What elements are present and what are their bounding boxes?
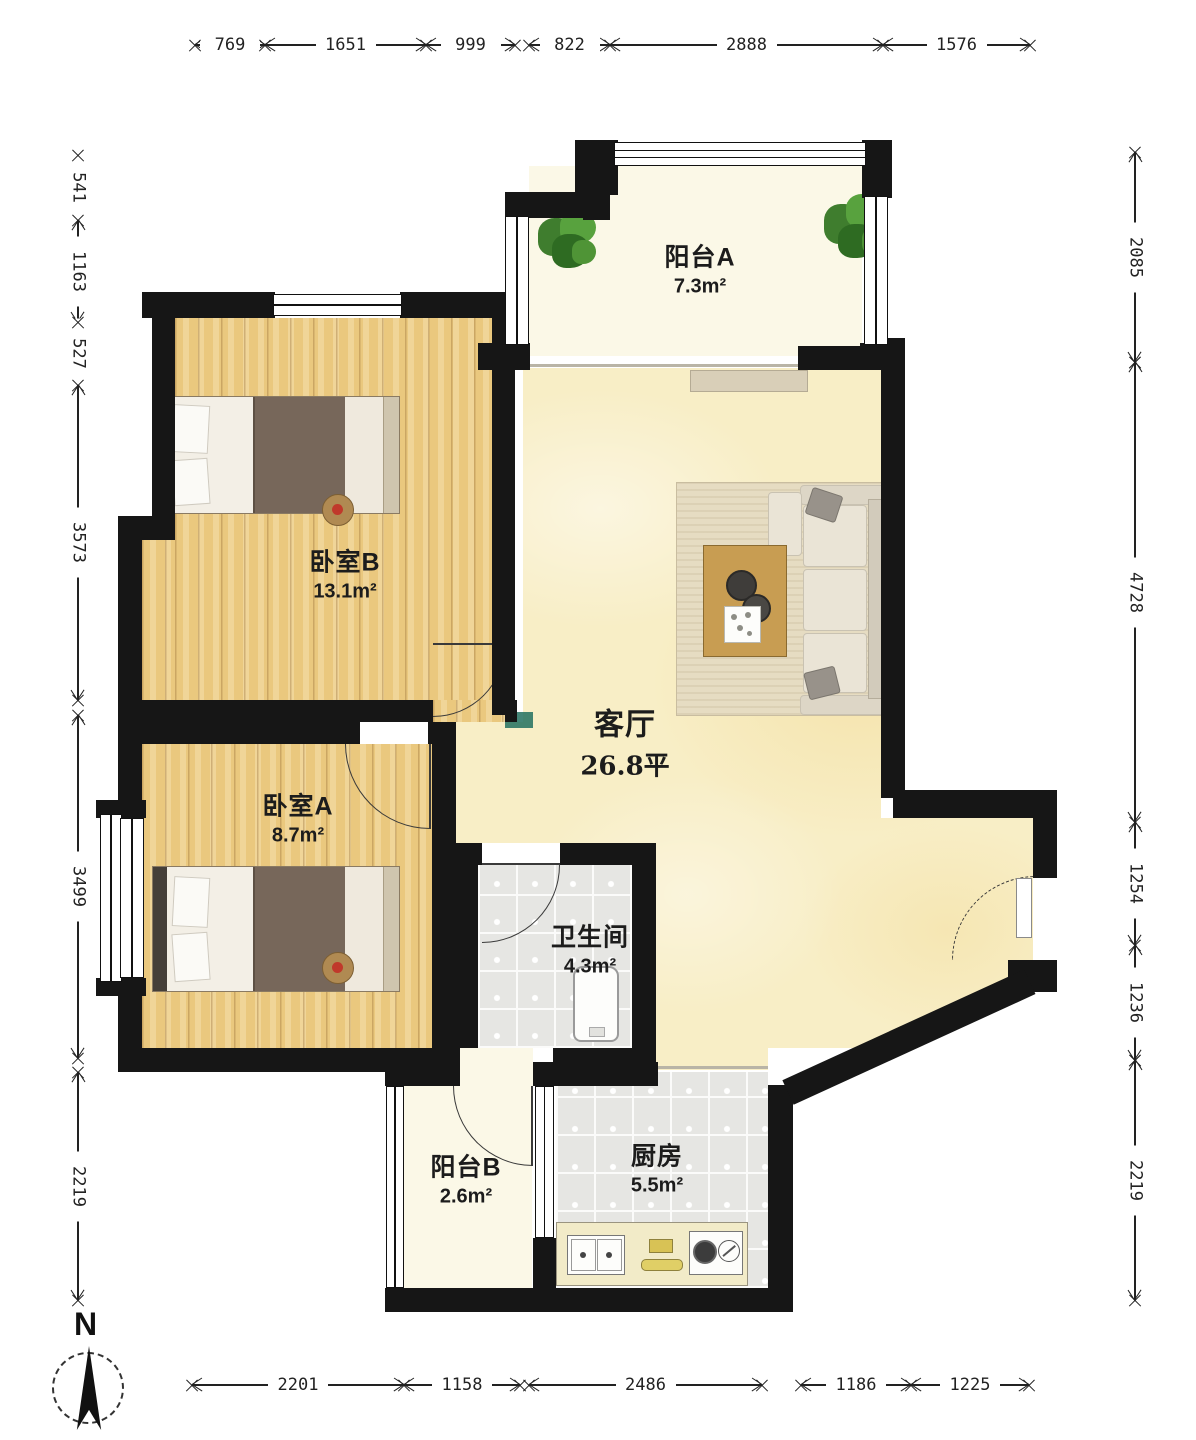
dimension-tick-icon [72, 1052, 85, 1065]
dimension-tick-icon [509, 39, 522, 52]
kitchen-counter [556, 1222, 748, 1286]
door-leaf-balcony-b [531, 1086, 533, 1166]
dimension-label: 1158 [432, 1376, 492, 1395]
wall [893, 790, 1057, 818]
dimension-tick-icon [1024, 39, 1037, 52]
dimension-tick-icon [189, 39, 202, 52]
wall [768, 1085, 793, 1312]
wall [862, 140, 892, 198]
wall [432, 744, 456, 844]
door-leaf-bedroom-a [429, 744, 431, 829]
dimension-tick-icon [1129, 816, 1142, 829]
dimension-label: 999 [441, 36, 501, 55]
dimension-tick-icon [1129, 1054, 1142, 1067]
bedroom-b-floor-step [142, 540, 175, 700]
dimension-label: 4728 [1126, 557, 1145, 627]
window [386, 1086, 404, 1288]
dimension-tick-icon [1129, 939, 1142, 952]
dimension-tick-icon [72, 316, 85, 329]
wall [505, 700, 517, 722]
tv-bench [690, 370, 808, 392]
dimension-label: 3499 [69, 852, 88, 922]
dimension-tick-icon [72, 1294, 85, 1307]
dimension-tick-icon [72, 694, 85, 707]
room-label-kitchen: 厨房 5.5m² [631, 1137, 683, 1198]
floor-plan: 阳台A 7.3m² 卧室B 13.1m² 客厅 26.8平 卧室A 8.7m² … [0, 0, 1196, 1440]
dimension-label: 2201 [268, 1376, 328, 1395]
switch-panel [649, 1239, 673, 1253]
kitchen-threshold [658, 1066, 768, 1069]
dimension-tick-icon [905, 1379, 918, 1392]
dimension-tick-icon [523, 39, 536, 52]
coffee-table [703, 545, 787, 657]
room-label-living-room: 客厅 26.8平 [580, 700, 669, 783]
dimension-label: 1186 [826, 1376, 886, 1395]
dimension-tick-icon [420, 39, 433, 52]
balcony-b-door-gap [460, 1048, 533, 1086]
wall [118, 722, 360, 744]
tray [724, 606, 761, 643]
entry-door-leaf [1016, 878, 1032, 938]
window [505, 216, 529, 345]
stove [689, 1231, 743, 1275]
bed-bedroom-a [152, 866, 400, 992]
wall [385, 1062, 460, 1086]
switch-panel [641, 1259, 683, 1271]
wall [492, 292, 515, 715]
room-label-bathroom: 卫生间 4.3m² [551, 918, 629, 979]
wall [456, 843, 482, 865]
room-label-bedroom-a: 卧室A 8.7m² [262, 787, 333, 848]
wall [505, 192, 610, 218]
sink [567, 1235, 625, 1275]
wall [798, 346, 864, 370]
dimension-tick-icon [72, 1066, 85, 1079]
dimension-tick-icon [523, 1379, 536, 1392]
window [614, 142, 866, 166]
wall [428, 722, 456, 744]
bed-bedroom-b [152, 396, 400, 514]
dimension-label: 2219 [1126, 1145, 1145, 1215]
dimension-tick-icon [877, 39, 890, 52]
room-label-balcony-a: 阳台A 7.3m² [664, 238, 735, 299]
dimension-label: 1236 [1126, 968, 1145, 1038]
wall [533, 1062, 658, 1086]
room-label-bedroom-b: 卧室B 13.1m² [309, 543, 380, 604]
wall [881, 338, 905, 798]
dimension-label: 1576 [927, 36, 987, 55]
bedside-table [322, 952, 354, 984]
dimension-tick-icon [72, 709, 85, 722]
window [120, 818, 144, 978]
wall [1033, 818, 1057, 878]
dimension-label: 2486 [616, 1376, 676, 1395]
dimension-label: 541 [69, 153, 88, 223]
dimension-label: 1163 [69, 236, 88, 306]
dimension-tick-icon [1023, 1379, 1036, 1392]
window [535, 1086, 554, 1238]
dimension-label: 1651 [316, 36, 376, 55]
dimension-tick-icon [259, 39, 272, 52]
balcony-a-threshold [530, 364, 798, 367]
wall [142, 292, 275, 318]
dimension-label: 769 [200, 36, 260, 55]
bedside-table [322, 494, 354, 526]
wall [575, 140, 618, 195]
window [864, 196, 888, 345]
dimension-tick-icon [1129, 146, 1142, 159]
sofa [800, 485, 884, 713]
window [100, 814, 122, 982]
dimension-tick-icon [398, 1379, 411, 1392]
dimension-label: 822 [540, 36, 600, 55]
dimension-tick-icon [72, 214, 85, 227]
wall [432, 843, 478, 1048]
dimension-label: 2219 [69, 1151, 88, 1221]
room-label-balcony-b: 阳台B 2.6m² [430, 1148, 501, 1209]
wall [142, 700, 433, 722]
wall [385, 1288, 793, 1312]
dimension-tick-icon [795, 1379, 808, 1392]
dimension-tick-icon [72, 379, 85, 392]
dimension-label: 1254 [1126, 849, 1145, 919]
dimension-tick-icon [604, 39, 617, 52]
dimension-label: 1225 [940, 1376, 1000, 1395]
compass-label: N [74, 1306, 97, 1343]
dimension-label: 3573 [69, 508, 88, 578]
room-area: 7.3m² [664, 276, 735, 299]
room-name: 阳台A [664, 238, 735, 274]
dimension-tick-icon [1129, 356, 1142, 369]
wall [632, 843, 656, 1072]
dimension-label: 2085 [1126, 222, 1145, 292]
door-leaf-bathroom [482, 863, 560, 865]
dimension-tick-icon [186, 1379, 199, 1392]
dimension-tick-icon [756, 1379, 769, 1392]
wall [152, 292, 175, 540]
dimension-tick-icon [1129, 1294, 1142, 1307]
window [273, 294, 402, 316]
dimension-tick-icon [72, 149, 85, 162]
dimension-label: 2888 [717, 36, 777, 55]
